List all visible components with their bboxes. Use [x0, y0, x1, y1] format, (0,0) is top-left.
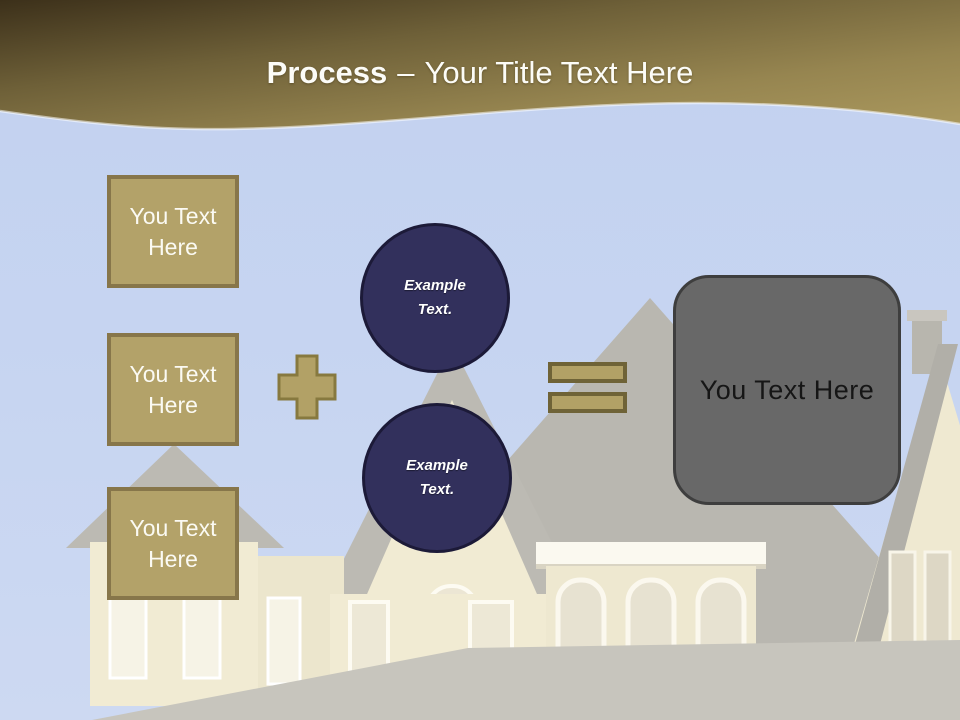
title-rest-text: Your Title Text Here [425, 55, 694, 90]
example-circle-2-label: Example Text. [393, 454, 481, 502]
example-circle-1[interactable]: Example Text. [360, 223, 510, 373]
example-circle-2[interactable]: Example Text. [362, 403, 512, 553]
input-box-2[interactable]: You Text Here [107, 333, 239, 446]
right-gable-window [925, 552, 950, 650]
equals-bar-top [548, 362, 627, 383]
input-box-1[interactable]: You Text Here [107, 175, 239, 288]
slide: Process–Your Title Text Here You Text He… [0, 0, 960, 720]
result-box[interactable]: You Text Here [673, 275, 901, 505]
slide-title: Process–Your Title Text Here [0, 50, 960, 96]
equals-icon [548, 362, 627, 413]
example-circle-1-label: Example Text. [391, 274, 479, 322]
input-box-3-label: You Text Here [117, 513, 229, 575]
input-box-1-label: You Text Here [117, 201, 229, 263]
plus-icon [277, 354, 337, 420]
equals-bar-bottom [548, 392, 627, 413]
chimney-cap [907, 310, 947, 321]
plus-glyph [279, 356, 335, 418]
plus-icon-shape [277, 354, 337, 420]
left-wall-window [268, 598, 300, 684]
right-gable-window [890, 552, 915, 650]
input-box-3[interactable]: You Text Here [107, 487, 239, 600]
input-box-2-label: You Text Here [117, 359, 229, 421]
title-separator: – [397, 55, 414, 90]
bay-cornice [536, 542, 766, 564]
title-bold-text: Process [267, 55, 388, 90]
result-box-label: You Text Here [700, 375, 875, 406]
